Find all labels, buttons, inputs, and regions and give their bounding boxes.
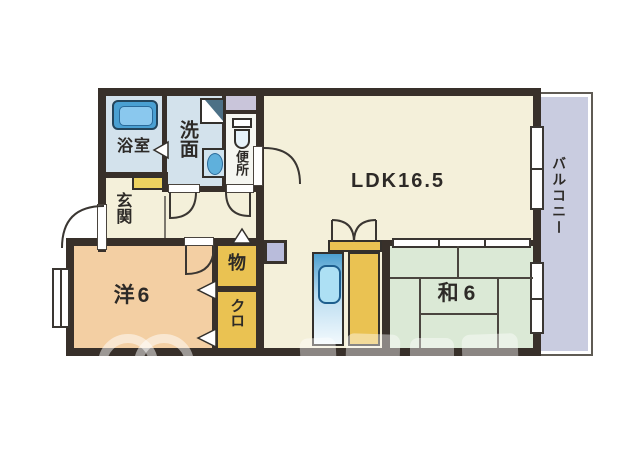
window-icon: [530, 262, 544, 334]
label-entrance: 玄関: [112, 192, 130, 242]
label-bath: 浴室: [108, 138, 160, 156]
wall-hall-ldk: [256, 88, 264, 356]
label-japanese-room: 和6: [424, 282, 494, 306]
kitchen-sink-icon: [312, 252, 344, 346]
room-ldk: [264, 96, 533, 240]
ldk-door-leaf: [253, 146, 263, 186]
label-western-room: 洋6: [100, 284, 166, 308]
window-icon: [52, 268, 70, 328]
window-divider: [532, 298, 542, 300]
wall-storage-closet: [218, 286, 256, 292]
window-icon: [530, 126, 544, 210]
vanity-bowl: [207, 153, 223, 175]
floor-plan: 浴室 洗面 便所 玄関 LDK16.5 和6 洋6 物 クロ バルコニー: [0, 0, 640, 475]
window-divider: [532, 168, 542, 170]
toilet-bowl: [234, 129, 250, 149]
wall-western-closet: [212, 238, 218, 356]
western-door-threshold: [184, 237, 214, 246]
label-closet: クロ: [228, 298, 245, 344]
sliding-door-divider: [484, 240, 486, 246]
label-washroom: 洗面: [176, 120, 198, 196]
label-storage: 物: [222, 253, 252, 274]
wall-kitchen-tatami: [382, 240, 390, 356]
label-toilet: 便所: [233, 150, 248, 202]
wall-top: [98, 88, 541, 96]
kitchen-counter: [348, 252, 380, 346]
bathtub-icon: [112, 100, 158, 130]
sliding-door-divider: [438, 240, 440, 246]
wall-bath-washroom: [162, 96, 167, 178]
wall-bottom: [66, 348, 541, 356]
kitchen-sill: [328, 240, 382, 252]
shoe-cabinet: [132, 176, 164, 190]
kitchen-sink-basin: [318, 265, 341, 304]
toilet-icon: [232, 118, 252, 128]
label-balcony: バルコニー: [551, 156, 567, 306]
vanity-sink-icon: [202, 148, 226, 178]
pipe-space-box: [264, 240, 287, 264]
bathtub-inner: [119, 106, 153, 126]
wall-hall-bottom: [66, 238, 264, 246]
pipe-space: [226, 96, 256, 114]
washing-machine-icon: [200, 98, 225, 124]
label-ldk: LDK16.5: [330, 170, 466, 193]
front-door-leaf: [97, 204, 107, 250]
sliding-door-icon: [392, 238, 531, 248]
